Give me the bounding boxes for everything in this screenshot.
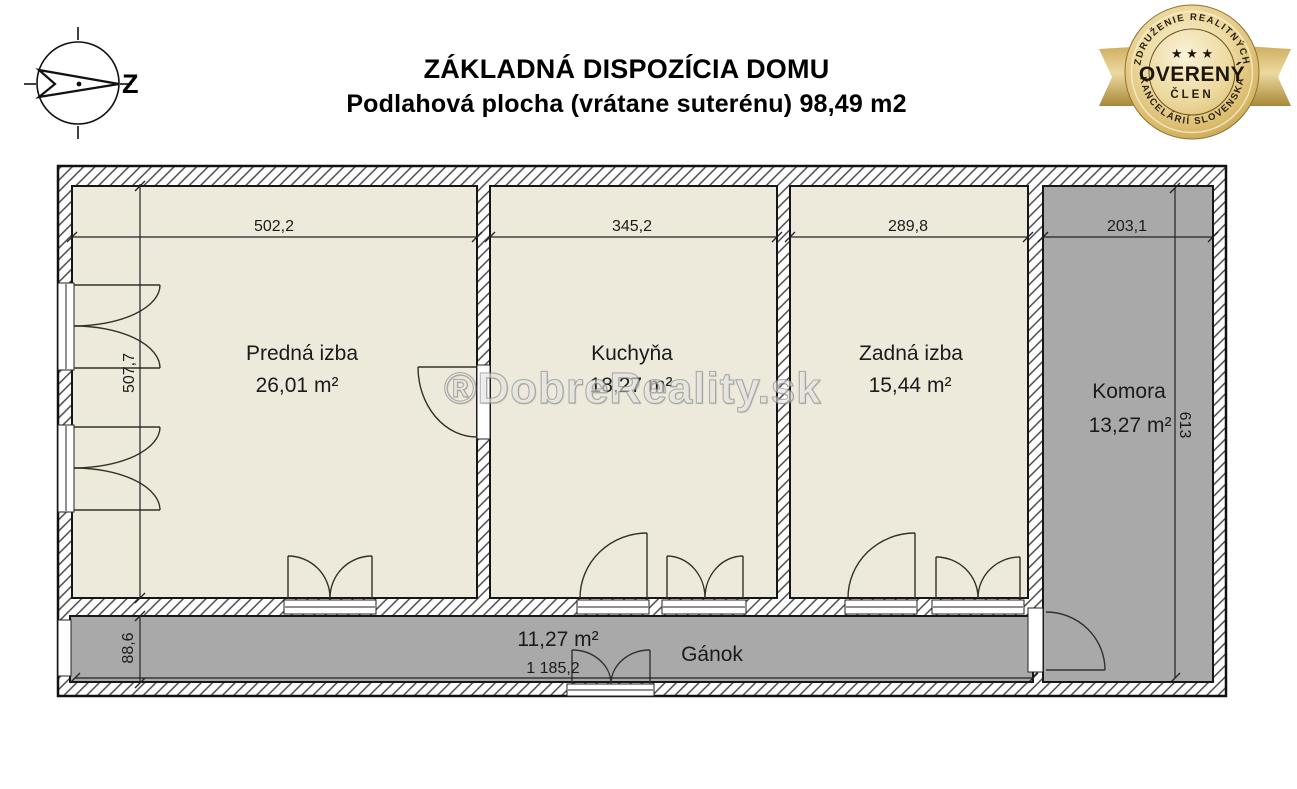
dim-ganok-width: 1 185,2 <box>526 660 579 677</box>
room-predna-area: 26,01 m² <box>256 374 339 397</box>
certification-badge: ZDRUŽENIE REALITNÝCH KANCELÁRIÍ SLOVENSK… <box>1095 2 1295 150</box>
compass-icon: Z <box>22 18 152 153</box>
title-line2: Podlahová plocha (vrátane suterénu) 98,4… <box>0 90 1253 119</box>
badge-stars-icon: ★ ★ ★ <box>1171 46 1213 61</box>
title-line1: ZÁKLADNÁ DISPOZÍCIA DOMU <box>0 54 1253 85</box>
room-zadna-label: Zadná izba <box>859 342 963 365</box>
badge-title: OVERENÝ <box>1139 62 1245 86</box>
room-predna-label: Predná izba <box>246 342 358 365</box>
compass-west-label: Z <box>122 69 139 99</box>
room-komora-area: 13,27 m² <box>1089 414 1172 437</box>
room-zadna-area: 15,44 m² <box>869 374 952 397</box>
dim-left-height: 507,7 <box>121 353 138 393</box>
dim-kuchyna-width: 345,2 <box>612 218 652 235</box>
dim-zadna-width: 289,8 <box>888 218 928 235</box>
window-frame-ganok-left <box>58 620 71 676</box>
room-kuchyna-label: Kuchyňa <box>591 342 673 365</box>
door-frame-komora <box>1028 608 1043 672</box>
page-title: ZÁKLADNÁ DISPOZÍCIA DOMU Podlahová ploch… <box>0 54 1253 119</box>
dim-ganok-height: 88,6 <box>120 632 137 663</box>
badge-subtitle: ČLEN <box>1170 88 1213 101</box>
room-kuchyna-area: 18,27 m² <box>590 374 673 397</box>
room-ganok-label: Gánok <box>681 643 743 666</box>
door-frame-interior <box>477 365 490 439</box>
dim-komora-height: 613 <box>1176 412 1193 439</box>
dim-predna-width: 502,2 <box>254 218 294 235</box>
room-komora-label: Komora <box>1092 380 1166 403</box>
room-ganok-area: 11,27 m² <box>517 628 598 651</box>
dim-komora-width: 203,1 <box>1107 218 1147 235</box>
